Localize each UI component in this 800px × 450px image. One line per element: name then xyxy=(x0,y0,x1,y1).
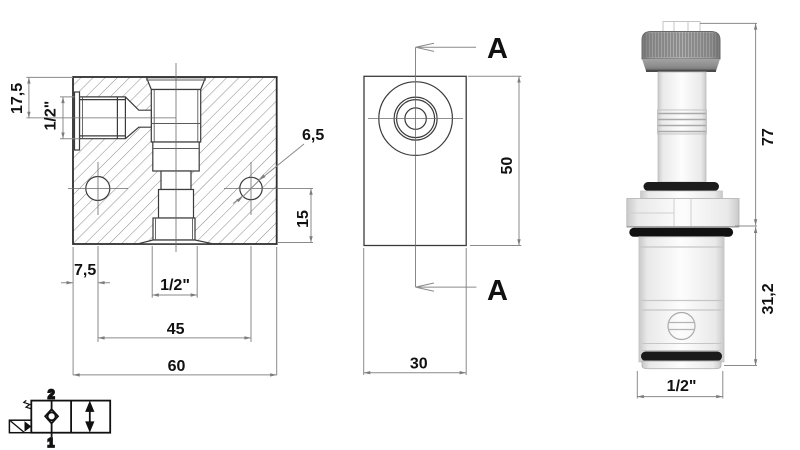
svg-text:77: 77 xyxy=(760,128,777,146)
svg-text:31,2: 31,2 xyxy=(760,283,777,314)
svg-text:1/2": 1/2" xyxy=(43,101,60,131)
svg-text:6,5: 6,5 xyxy=(302,127,324,144)
svg-text:7,5: 7,5 xyxy=(74,262,96,279)
svg-text:2: 2 xyxy=(48,387,55,401)
svg-text:15: 15 xyxy=(295,210,312,228)
svg-text:17,5: 17,5 xyxy=(9,83,26,114)
svg-text:1/2": 1/2" xyxy=(667,378,697,395)
svg-text:1: 1 xyxy=(47,436,54,450)
svg-text:60: 60 xyxy=(168,358,186,375)
svg-text:1/2": 1/2" xyxy=(160,277,190,294)
svg-text:A: A xyxy=(487,275,508,307)
svg-text:A: A xyxy=(487,33,508,65)
svg-text:30: 30 xyxy=(410,356,428,373)
svg-text:45: 45 xyxy=(167,321,185,338)
svg-text:50: 50 xyxy=(499,157,516,175)
